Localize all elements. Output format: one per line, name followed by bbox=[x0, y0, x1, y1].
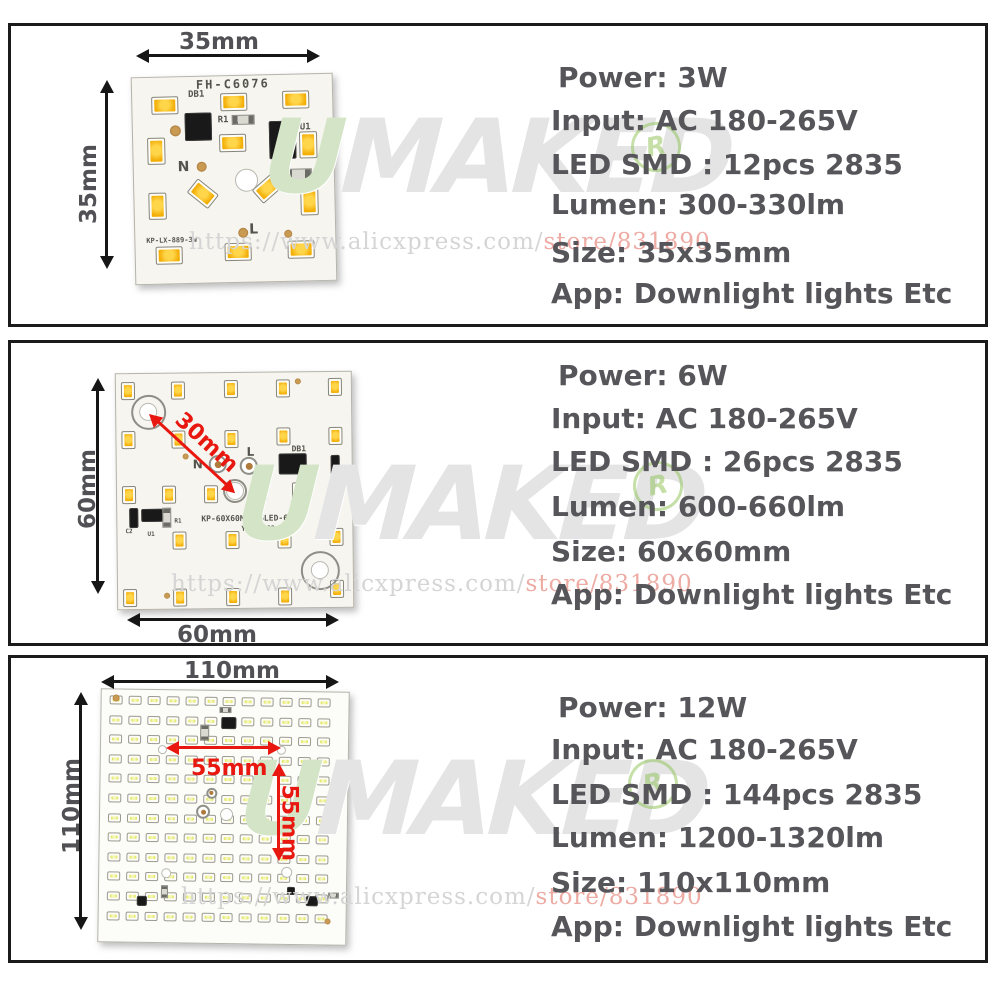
led-chip bbox=[204, 485, 218, 503]
silkscreen-n: N bbox=[178, 159, 190, 175]
led-chip bbox=[260, 717, 273, 726]
panel-3w: UMAKED R https://www.alicxpress.com/stor… bbox=[8, 23, 988, 327]
solder-pad bbox=[238, 228, 248, 238]
ic-chip bbox=[287, 887, 295, 895]
solder-pad bbox=[295, 378, 301, 384]
dim-arrow-55mm-horizontal bbox=[166, 741, 281, 755]
led-chip bbox=[315, 875, 328, 884]
led-chip bbox=[107, 872, 120, 881]
led-chip bbox=[219, 134, 246, 153]
silkscreen-part-number: KP-LX-889-3W bbox=[146, 236, 197, 245]
led-chip bbox=[242, 697, 255, 706]
led-chip bbox=[147, 696, 160, 705]
led-chip bbox=[280, 698, 293, 707]
led-chip bbox=[298, 718, 311, 727]
spec-led: LED SMD : 144pcs 2835 bbox=[551, 778, 922, 811]
led-chip bbox=[300, 188, 319, 215]
led-chip bbox=[146, 814, 159, 823]
smd-resistor bbox=[200, 725, 209, 741]
spec-input: Input: AC 180-265V bbox=[551, 104, 858, 137]
led-chip bbox=[224, 243, 251, 262]
led-chip bbox=[165, 775, 178, 784]
led-chip bbox=[108, 774, 121, 783]
silkscreen-l: L bbox=[249, 221, 258, 237]
led-chip bbox=[277, 894, 290, 903]
led-chip bbox=[279, 717, 292, 726]
smd-resistor bbox=[232, 115, 255, 126]
led-chip bbox=[315, 855, 328, 864]
mounting-hole bbox=[234, 168, 258, 192]
mounting-hole bbox=[161, 868, 171, 878]
ic-chip bbox=[184, 112, 212, 141]
led-chip bbox=[109, 735, 122, 744]
led-chip bbox=[164, 833, 177, 842]
led-chip bbox=[123, 589, 137, 607]
led-chip bbox=[220, 913, 233, 922]
led-chip bbox=[146, 794, 159, 803]
solder-pad bbox=[325, 918, 331, 924]
led-chip bbox=[184, 814, 197, 823]
led-chip bbox=[147, 735, 160, 744]
led-chip bbox=[122, 486, 136, 504]
led-chip bbox=[282, 90, 309, 109]
dim-label-35mm-top: 35mm bbox=[179, 29, 259, 55]
spec-led: LED SMD : 26pcs 2835 bbox=[551, 445, 903, 478]
smd-resistor bbox=[285, 168, 312, 181]
led-chip bbox=[121, 431, 135, 449]
led-chip bbox=[107, 891, 120, 900]
pcb-photo-35mm: FH-C6076 DB1 R1 U1 C1 N L KP-LX-889-3W bbox=[131, 73, 338, 286]
led-chip bbox=[127, 833, 140, 842]
led-chip bbox=[317, 698, 330, 707]
panel-6w: UMAKED R https://www.alicxpress.com/stor… bbox=[8, 340, 988, 646]
led-chip bbox=[185, 696, 198, 705]
led-chip bbox=[183, 853, 196, 862]
led-chip bbox=[147, 138, 166, 165]
led-chip bbox=[202, 854, 215, 863]
dim-arrow-35mm-left bbox=[100, 80, 114, 269]
led-chip bbox=[298, 757, 311, 766]
led-chip bbox=[183, 834, 196, 843]
led-chip bbox=[107, 911, 120, 920]
dim-label-60mm-left: 60mm bbox=[75, 449, 101, 529]
led-chip bbox=[240, 795, 253, 804]
led-chip bbox=[146, 774, 159, 783]
led-chip bbox=[107, 852, 120, 861]
silkscreen-u1: U1 bbox=[300, 122, 311, 132]
spec-input: Input: AC 180-265V bbox=[551, 402, 858, 435]
led-chip bbox=[328, 427, 342, 445]
led-chip bbox=[226, 588, 240, 606]
silkscreen-r1: R1 bbox=[174, 518, 181, 525]
led-chip bbox=[328, 378, 342, 396]
solder-pad bbox=[284, 230, 292, 238]
ic-chip bbox=[269, 121, 297, 160]
led-chip bbox=[316, 796, 329, 805]
spec-lumen: Lumen: 600-660lm bbox=[551, 490, 845, 523]
dim-label-55mm-vertical: 55mm bbox=[277, 785, 302, 845]
led-chip bbox=[220, 873, 233, 882]
dim-label-55mm-horizontal: 55mm bbox=[191, 756, 251, 781]
spec-input: Input: AC 180-265V bbox=[551, 733, 858, 766]
led-chip bbox=[128, 715, 141, 724]
dim-label-110mm-top: 110mm bbox=[184, 658, 264, 684]
spec-lumen: Lumen: 300-330lm bbox=[551, 188, 845, 221]
led-chip bbox=[148, 193, 167, 220]
spec-power: Power: 12W bbox=[551, 691, 747, 724]
led-chip bbox=[261, 698, 274, 707]
led-chip bbox=[239, 874, 252, 883]
led-chip bbox=[296, 914, 309, 923]
led-chip bbox=[316, 835, 329, 844]
led-chip bbox=[165, 794, 178, 803]
spec-size: Size: 110x110mm bbox=[551, 866, 830, 899]
ic-chip bbox=[141, 509, 163, 522]
solder-pad-ringed bbox=[196, 805, 210, 819]
led-chip bbox=[259, 796, 272, 805]
led-chip bbox=[223, 697, 236, 706]
led-chip bbox=[187, 178, 219, 209]
led-chip bbox=[145, 872, 158, 881]
led-chip bbox=[299, 131, 318, 158]
led-chip bbox=[128, 735, 141, 744]
led-chip bbox=[127, 774, 140, 783]
led-chip bbox=[128, 696, 141, 705]
led-chip bbox=[171, 382, 185, 400]
led-chip bbox=[202, 834, 215, 843]
led-chip bbox=[259, 854, 272, 863]
led-chip bbox=[204, 697, 217, 706]
led-chip bbox=[165, 814, 178, 823]
led-chip bbox=[162, 486, 176, 504]
mounting-hole bbox=[219, 807, 232, 820]
led-chip bbox=[240, 854, 253, 863]
smd-resistor bbox=[219, 707, 231, 713]
led-chip bbox=[278, 587, 292, 605]
solder-pad-ringed bbox=[206, 787, 217, 798]
led-chip bbox=[185, 716, 198, 725]
led-chip bbox=[239, 893, 252, 902]
led-chip bbox=[298, 737, 311, 746]
led-chip bbox=[317, 757, 330, 766]
led-chip bbox=[240, 834, 253, 843]
led-chip bbox=[292, 482, 306, 500]
led-chip bbox=[145, 833, 158, 842]
led-chip bbox=[277, 913, 290, 922]
led-chip bbox=[109, 754, 122, 763]
led-chip bbox=[108, 793, 121, 802]
led-chip bbox=[276, 427, 290, 445]
led-chip bbox=[172, 532, 186, 550]
solder-pad bbox=[169, 125, 180, 136]
panel-12w: UMAKED R https://www.alicxpress.com/stor… bbox=[8, 655, 988, 963]
dim-label-60mm-bottom: 60mm bbox=[177, 622, 257, 646]
led-chip bbox=[121, 382, 135, 400]
led-chip bbox=[109, 715, 122, 724]
led-chip bbox=[317, 718, 330, 727]
led-chip bbox=[221, 834, 234, 843]
led-chip bbox=[220, 893, 233, 902]
led-chip bbox=[127, 794, 140, 803]
led-chip bbox=[222, 795, 235, 804]
led-chip bbox=[144, 911, 157, 920]
silkscreen-db1: DB1 bbox=[292, 444, 307, 453]
silkscreen-c2: C2 bbox=[125, 528, 132, 535]
led-chip bbox=[259, 815, 272, 824]
led-chip bbox=[201, 893, 214, 902]
spec-power: Power: 6W bbox=[551, 359, 728, 392]
led-chip bbox=[182, 912, 195, 921]
product-spec-image: UMAKED R https://www.alicxpress.com/stor… bbox=[0, 0, 1000, 1000]
led-chip bbox=[287, 240, 314, 259]
silkscreen-db1: DB1 bbox=[188, 90, 204, 100]
led-chip bbox=[147, 755, 160, 764]
silkscreen-l: L bbox=[247, 445, 255, 459]
led-chip bbox=[173, 589, 187, 607]
ic-chip bbox=[137, 896, 147, 906]
led-chip bbox=[145, 853, 158, 862]
led-chip bbox=[221, 854, 234, 863]
silkscreen-serial: Y-L72383 bbox=[241, 525, 275, 533]
silkscreen-r1: R1 bbox=[218, 115, 229, 125]
mounting-hole bbox=[311, 561, 329, 579]
led-chip bbox=[151, 96, 178, 115]
led-chip bbox=[299, 698, 312, 707]
led-chip bbox=[108, 813, 121, 822]
spec-app: App: Downlight lights Etc bbox=[551, 910, 952, 943]
led-chip bbox=[258, 874, 271, 883]
led-chip bbox=[225, 531, 239, 549]
ic-chip bbox=[279, 453, 307, 474]
silkscreen-u1: U1 bbox=[147, 531, 154, 538]
led-chip bbox=[128, 754, 141, 763]
led-chip bbox=[220, 93, 247, 112]
led-chip bbox=[165, 755, 178, 764]
led-chip bbox=[276, 379, 290, 397]
smd-resistor bbox=[161, 885, 168, 898]
led-chip bbox=[201, 912, 214, 921]
led-chip bbox=[125, 911, 138, 920]
solder-pad bbox=[197, 162, 207, 172]
led-chip bbox=[164, 853, 177, 862]
led-chip bbox=[258, 913, 271, 922]
pcb-photo-110mm bbox=[97, 688, 350, 945]
led-chip bbox=[184, 794, 197, 803]
dim-label-35mm-left: 35mm bbox=[76, 144, 102, 224]
led-chip bbox=[127, 813, 140, 822]
led-chip bbox=[239, 913, 252, 922]
smd-resistor bbox=[328, 892, 339, 898]
led-chip bbox=[202, 873, 215, 882]
ic-chip bbox=[306, 896, 318, 906]
solder-pad bbox=[266, 466, 271, 471]
dim-label-110mm-left: 110mm bbox=[59, 774, 85, 854]
led-chip bbox=[258, 893, 271, 902]
spec-app: App: Downlight lights Etc bbox=[551, 277, 952, 310]
led-chip bbox=[316, 816, 329, 825]
spec-size: Size: 35x35mm bbox=[551, 236, 791, 269]
spec-led: LED SMD : 12pcs 2835 bbox=[551, 148, 903, 181]
led-chip bbox=[240, 815, 253, 824]
solder-pad bbox=[112, 694, 119, 701]
ic-chip bbox=[221, 717, 236, 729]
led-chip bbox=[163, 912, 176, 921]
solder-pad-ringed bbox=[240, 457, 258, 475]
solder-pad bbox=[164, 593, 170, 599]
silkscreen-c1: C1 bbox=[315, 169, 326, 179]
led-chip bbox=[126, 872, 139, 881]
spec-size: Size: 60x60mm bbox=[551, 535, 791, 568]
led-chip bbox=[253, 483, 267, 501]
smd-resistor bbox=[162, 508, 171, 528]
led-chip bbox=[317, 737, 330, 746]
ic-chip bbox=[129, 508, 138, 528]
led-chip bbox=[316, 777, 329, 786]
spec-lumen: Lumen: 1200-1320lm bbox=[551, 821, 884, 854]
led-chip bbox=[224, 380, 238, 398]
led-chip bbox=[279, 737, 292, 746]
led-chip bbox=[296, 874, 309, 883]
led-chip bbox=[242, 717, 255, 726]
mounting-hole bbox=[281, 866, 292, 877]
led-chip bbox=[277, 530, 291, 548]
mounting-hole bbox=[320, 139, 337, 166]
led-chip bbox=[329, 482, 343, 500]
spec-power: Power: 3W bbox=[551, 61, 728, 94]
spec-app: App: Downlight lights Etc bbox=[551, 578, 952, 611]
silkscreen-part-number: KP-60X60MM-26LED-6W bbox=[201, 513, 293, 523]
ic-chip bbox=[331, 455, 340, 475]
led-chip bbox=[166, 696, 179, 705]
led-chip bbox=[183, 873, 196, 882]
led-chip bbox=[156, 246, 183, 265]
led-chip bbox=[182, 892, 195, 901]
led-chip bbox=[126, 852, 139, 861]
led-chip bbox=[166, 716, 179, 725]
led-chip bbox=[147, 716, 160, 725]
led-chip bbox=[329, 528, 343, 546]
led-chip bbox=[259, 835, 272, 844]
led-chip bbox=[108, 833, 121, 842]
